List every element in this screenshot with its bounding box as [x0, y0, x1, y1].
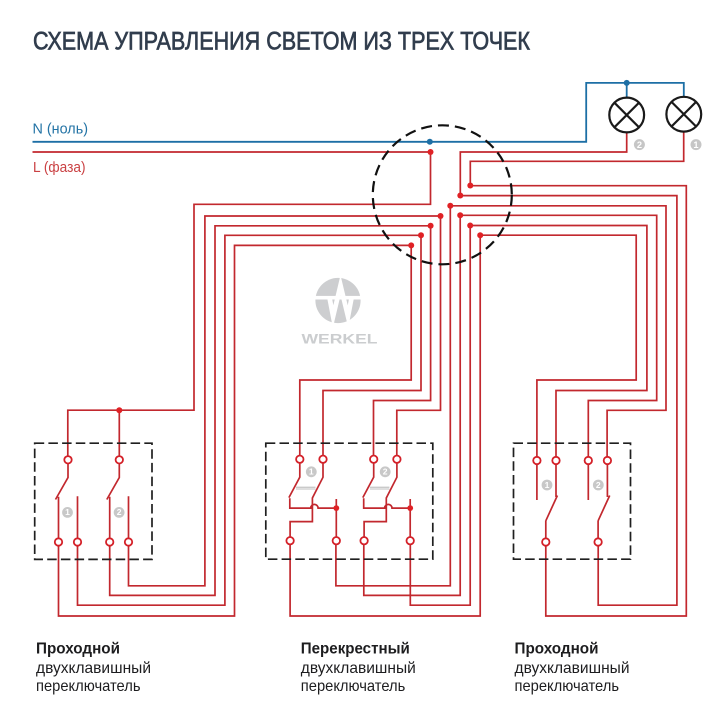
svg-text:2: 2 — [596, 480, 601, 490]
svg-text:1: 1 — [693, 140, 698, 150]
svg-text:2: 2 — [117, 507, 122, 517]
svg-text:двухклавишный: двухклавишный — [515, 660, 630, 677]
svg-text:Проходной: Проходной — [36, 641, 120, 658]
svg-text:Перекрестный: Перекрестный — [301, 641, 410, 658]
svg-text:L (фаза): L (фаза) — [33, 159, 86, 176]
svg-text:2: 2 — [383, 467, 388, 477]
svg-text:Проходной: Проходной — [515, 641, 599, 658]
svg-text:2: 2 — [637, 140, 642, 150]
svg-text:переключатель: переключатель — [515, 678, 620, 695]
svg-text:двухклавишный: двухклавишный — [301, 660, 416, 677]
svg-text:1: 1 — [65, 507, 70, 517]
svg-text:СХЕМА УПРАВЛЕНИЯ СВЕТОМ ИЗ ТРЕ: СХЕМА УПРАВЛЕНИЯ СВЕТОМ ИЗ ТРЕХ ТОЧЕК — [33, 28, 530, 56]
svg-text:1: 1 — [309, 467, 314, 477]
svg-text:N (ноль): N (ноль) — [33, 120, 89, 137]
svg-text:переключатель: переключатель — [301, 678, 406, 695]
svg-text:1: 1 — [545, 480, 550, 490]
svg-text:переключатель: переключатель — [36, 678, 141, 695]
svg-text:двухклавишный: двухклавишный — [36, 660, 151, 677]
svg-text:WERKEL: WERKEL — [302, 332, 378, 347]
